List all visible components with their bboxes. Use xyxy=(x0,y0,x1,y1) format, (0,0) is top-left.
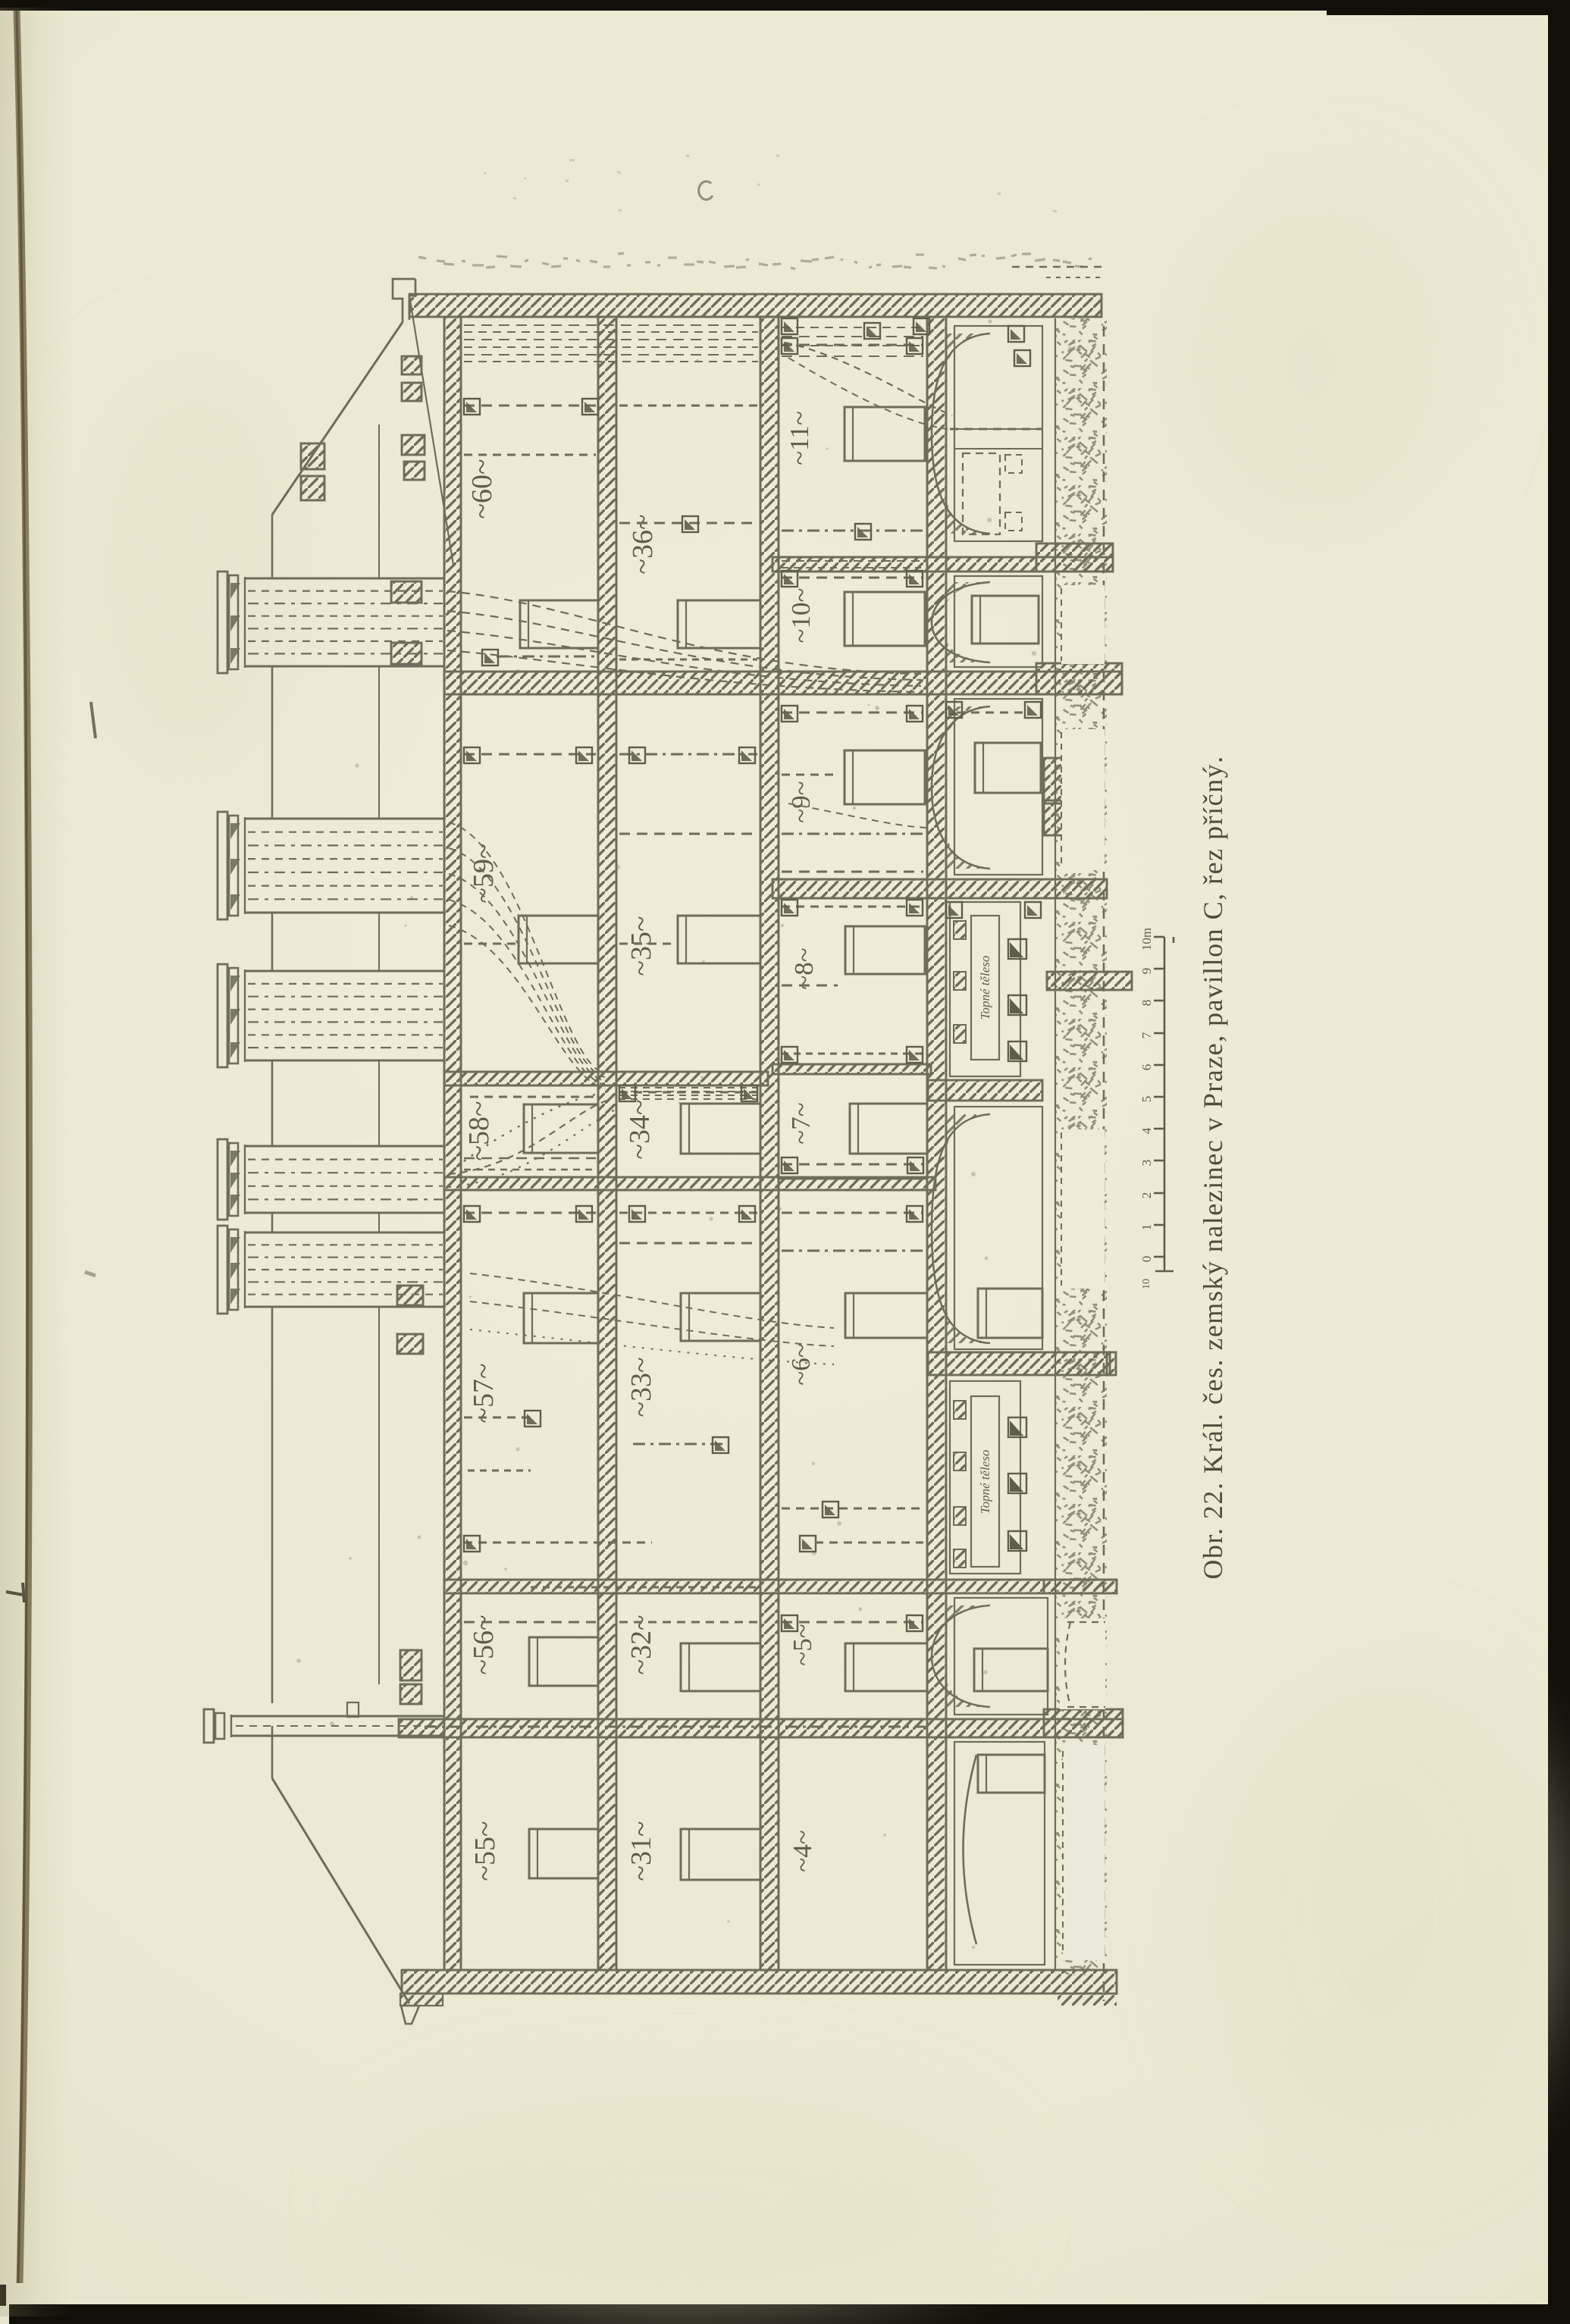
svg-text:0: 0 xyxy=(1139,1256,1154,1263)
svg-text:~8~: ~8~ xyxy=(789,947,819,989)
svg-text:Obr. 22. Král. čes. zemský nal: Obr. 22. Král. čes. zemský nalezinec v P… xyxy=(1198,755,1228,1579)
svg-text:~5~: ~5~ xyxy=(788,1624,817,1665)
svg-text:~11~: ~11~ xyxy=(785,411,814,465)
svg-text:9: 9 xyxy=(1139,968,1154,975)
svg-text:~57~: ~57~ xyxy=(468,1363,500,1423)
svg-text:~56~: ~56~ xyxy=(468,1615,500,1674)
svg-text:1: 1 xyxy=(1139,1224,1154,1231)
svg-text:~58~: ~58~ xyxy=(463,1101,495,1160)
svg-text:~33~: ~33~ xyxy=(625,1357,657,1417)
svg-text:6: 6 xyxy=(1139,1064,1154,1071)
svg-text:3: 3 xyxy=(1139,1160,1154,1167)
svg-text:8: 8 xyxy=(1139,1000,1154,1007)
svg-text:~55~: ~55~ xyxy=(469,1821,501,1881)
svg-text:~7~: ~7~ xyxy=(786,1102,816,1144)
svg-text:4: 4 xyxy=(1139,1127,1154,1134)
svg-text:7: 7 xyxy=(1139,1032,1154,1038)
svg-text:10: 10 xyxy=(1141,1279,1152,1289)
svg-text:~60~: ~60~ xyxy=(466,459,498,518)
svg-text:10m: 10m xyxy=(1139,928,1154,951)
svg-text:~34~: ~34~ xyxy=(624,1099,656,1159)
svg-text:5: 5 xyxy=(1139,1096,1154,1103)
svg-text:~59~: ~59~ xyxy=(468,843,500,903)
svg-text:~35~: ~35~ xyxy=(625,916,657,976)
svg-text:Topné těleso: Topné těleso xyxy=(978,1450,992,1514)
svg-text:~4~: ~4~ xyxy=(788,1830,817,1871)
svg-text:~31~: ~31~ xyxy=(625,1821,657,1881)
svg-text:~32~: ~32~ xyxy=(625,1615,657,1674)
svg-text:Topné těleso: Topné těleso xyxy=(978,956,992,1020)
svg-text:2: 2 xyxy=(1139,1192,1154,1199)
svg-text:~9~: ~9~ xyxy=(786,781,816,822)
svg-text:~10~: ~10~ xyxy=(786,588,816,644)
svg-text:~6~: ~6~ xyxy=(786,1343,816,1385)
